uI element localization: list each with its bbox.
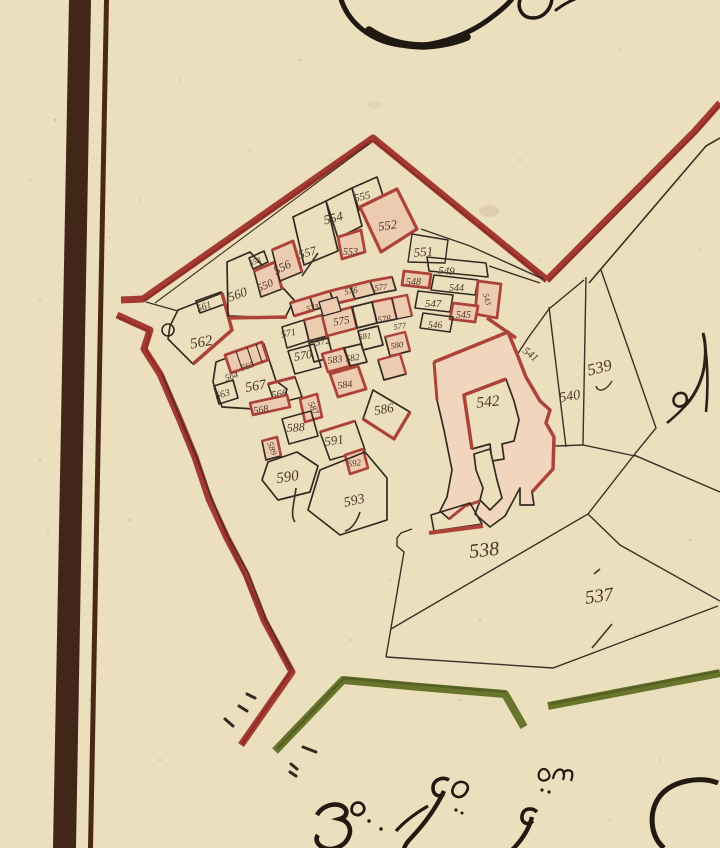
svg-text:590: 590 xyxy=(275,468,300,487)
svg-text:545: 545 xyxy=(456,310,471,321)
svg-text:582: 582 xyxy=(345,353,361,365)
svg-text:580: 580 xyxy=(390,339,405,351)
svg-text:553: 553 xyxy=(343,247,358,258)
svg-text:581: 581 xyxy=(358,330,372,342)
svg-text:552: 552 xyxy=(377,217,398,233)
svg-text:588: 588 xyxy=(286,420,305,435)
svg-text:542: 542 xyxy=(476,392,501,411)
svg-text:546: 546 xyxy=(428,321,443,331)
svg-text:591: 591 xyxy=(323,431,344,449)
svg-text:577: 577 xyxy=(374,281,389,293)
svg-text:547: 547 xyxy=(425,298,442,310)
svg-text:578: 578 xyxy=(377,313,392,325)
svg-text:584: 584 xyxy=(337,379,353,392)
svg-text:583: 583 xyxy=(327,354,343,367)
svg-text:548: 548 xyxy=(406,277,421,288)
svg-text:577: 577 xyxy=(393,320,408,332)
svg-text:538: 538 xyxy=(468,538,500,563)
svg-text:537: 537 xyxy=(584,584,617,609)
svg-text:544: 544 xyxy=(449,283,464,294)
